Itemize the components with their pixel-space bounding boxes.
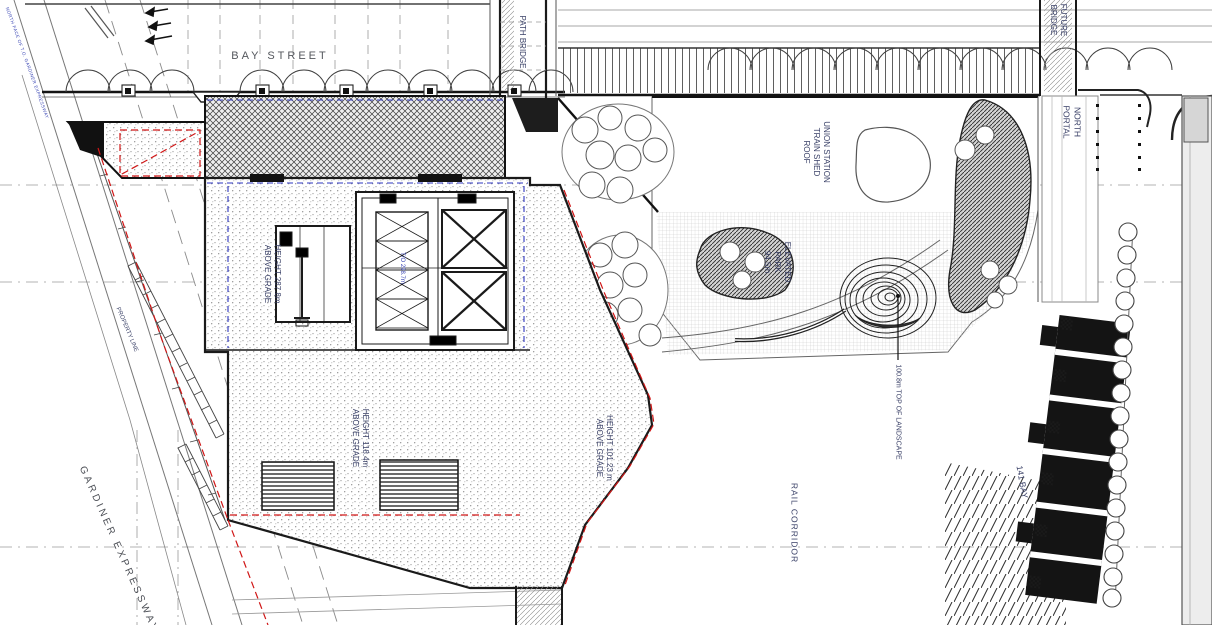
tower-height-label: HEIGHT 287.8m ABOVE GRADE xyxy=(262,245,282,304)
path-bridge-label: PATH BRIDGE xyxy=(517,15,527,68)
tower-core xyxy=(356,192,514,350)
elevated-park-label: ELEVATED PARK 94.5m xyxy=(762,242,792,283)
north-portal-label: NORTH PORTAL xyxy=(1061,105,1082,138)
union-station-roof-label: UNION STATION TRAIN SHED ROOF xyxy=(801,121,831,182)
top-of-landscape-label: 100.8m TOP OF LANDSCAPE xyxy=(893,364,902,459)
rail-corridor-label: RAIL CORRIDOR xyxy=(789,483,800,563)
siteplan-linework xyxy=(0,0,1212,625)
podium-height-label: HEIGHT 118.4m ABOVE GRADE xyxy=(350,409,370,467)
core-elevation-label: T/O 298.7m xyxy=(397,252,405,284)
bay-street-label: BAY STREET xyxy=(231,50,328,64)
future-bridge-label: FUTURE BRIDGE xyxy=(1048,4,1068,36)
east-podium-height-label: HEIGHT 101.23 m ABOVE GRADE xyxy=(594,415,614,481)
site-plan: BAY STREET NORTH FACE OF T.O. GARDINER E… xyxy=(0,0,1212,625)
west-core xyxy=(276,226,350,326)
